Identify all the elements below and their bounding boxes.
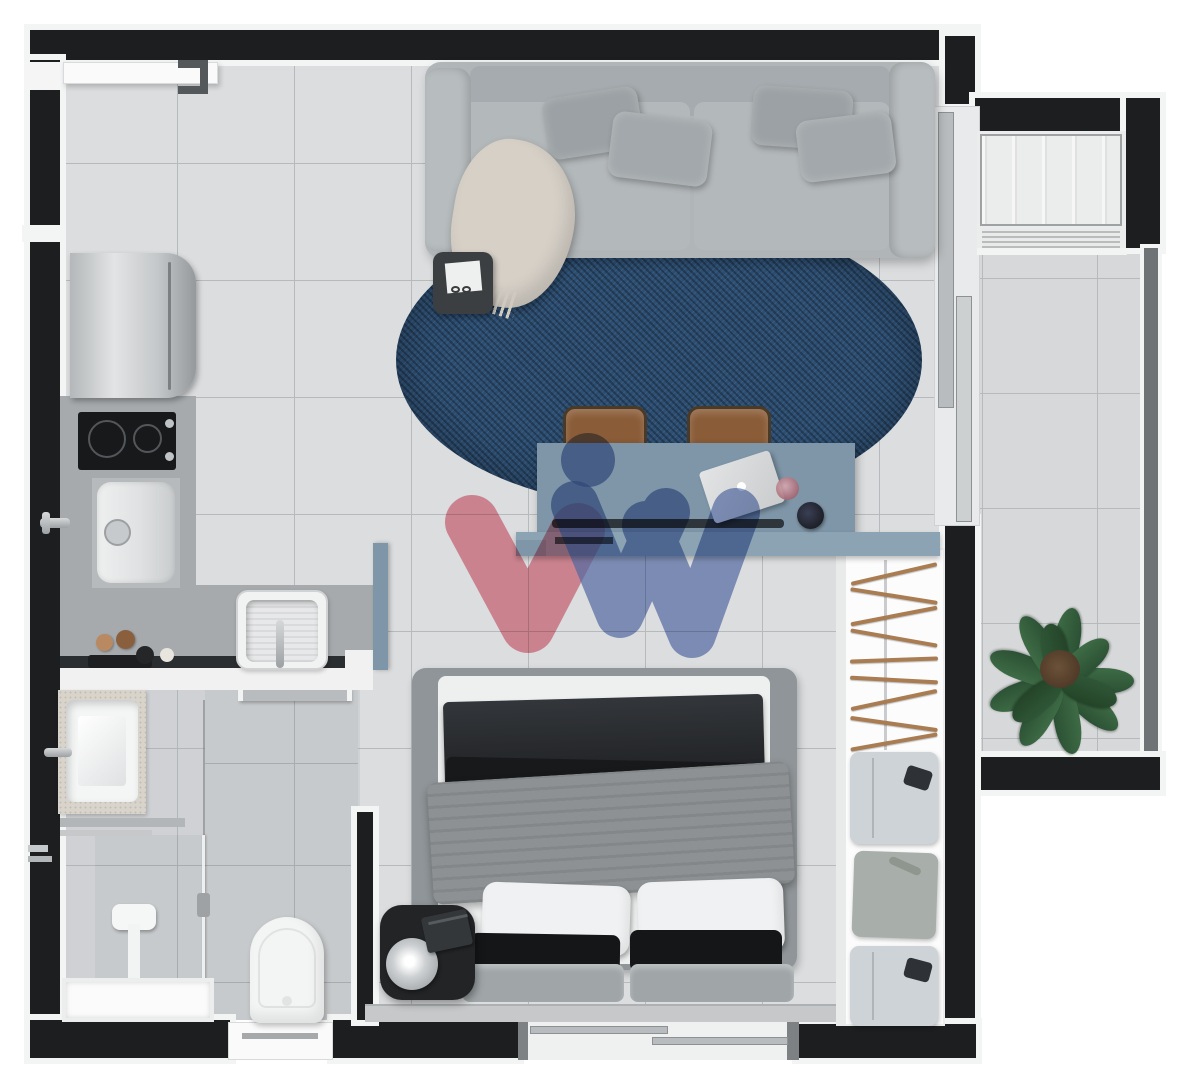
wall-ac-niche-right [1126, 98, 1160, 248]
glasses-icon [462, 286, 471, 293]
wall-bottom-left [30, 1020, 230, 1058]
sofa-pillow [795, 110, 898, 183]
balcony-door-panel [956, 296, 972, 522]
kitchen-counter-front [60, 668, 358, 690]
wall-bottom-center [333, 1020, 518, 1058]
wall-faucet-stem [42, 512, 50, 534]
folded-shirt [850, 752, 938, 844]
glass-cup [776, 477, 799, 500]
bath-shelf [60, 818, 185, 827]
ac-sill [977, 248, 1127, 255]
countertop-jar [136, 646, 154, 664]
speaker-knob [797, 502, 824, 529]
wall-bottom-right [798, 1024, 976, 1058]
wall-left-joint [22, 225, 62, 242]
balcony-door-panel [938, 112, 954, 408]
ac-vent-grille [982, 228, 1120, 248]
ac-condenser-unit [980, 134, 1122, 226]
headboard-cushion [462, 964, 624, 1002]
countertop-bottle [116, 630, 135, 649]
closet-side-panel [836, 548, 846, 1026]
washer-door-plate [104, 519, 131, 546]
cooktop-knob [165, 419, 174, 428]
glasses-icon [451, 286, 460, 293]
kitchen-end-panel [373, 543, 388, 670]
cooktop-burner [88, 420, 126, 458]
headboard-cushion [630, 964, 794, 1002]
balcony-glass-railing [1144, 248, 1158, 760]
potted-plant [985, 598, 1145, 763]
wall-left [30, 60, 60, 1020]
entry-door-frame-icon [178, 86, 208, 94]
window-jamb [787, 1020, 799, 1060]
refrigerator [70, 253, 196, 398]
shower-column-stem [128, 924, 140, 984]
vanity-faucet [44, 748, 72, 757]
window-jamb [518, 1020, 528, 1060]
towel-bar [28, 845, 48, 852]
kitchen-faucet [276, 620, 284, 668]
cooktop-burner [133, 424, 162, 453]
wall-bath-partition [357, 812, 373, 1020]
shower-tray [62, 978, 214, 1022]
under-counter-shelf [238, 690, 352, 701]
kitchen-counter-end-cap [345, 650, 373, 690]
folded-shirt-placket [872, 952, 874, 1020]
vanity-basin-inner [78, 716, 126, 786]
floor-plan-canvas [0, 0, 1188, 1080]
refrigerator-handle [168, 262, 171, 390]
wall-top-right-step [945, 36, 975, 104]
window-sash [652, 1037, 788, 1045]
bathroom-door-leaf [228, 1022, 333, 1060]
sofa-pillow [606, 110, 713, 188]
toilet-button [282, 996, 292, 1006]
cooktop-knob [165, 452, 174, 461]
bath-shelf [60, 830, 152, 836]
window-sash [530, 1026, 668, 1034]
shower-glass-handle [197, 893, 210, 917]
countertop-bottle [96, 634, 113, 651]
wall-top [30, 30, 975, 60]
shower-glass-screen [203, 700, 205, 835]
shower-floor-upper [205, 690, 358, 835]
plant-pot [1040, 650, 1080, 688]
towel-bar [28, 856, 52, 862]
watermark-logo [430, 425, 760, 665]
folded-shirt [850, 946, 938, 1026]
bathroom-door-handle [242, 1033, 318, 1039]
folded-shirt-placket [872, 758, 874, 838]
wall-right [945, 520, 975, 1058]
countertop-jar [160, 648, 174, 662]
entry-door-jamb [24, 62, 62, 90]
